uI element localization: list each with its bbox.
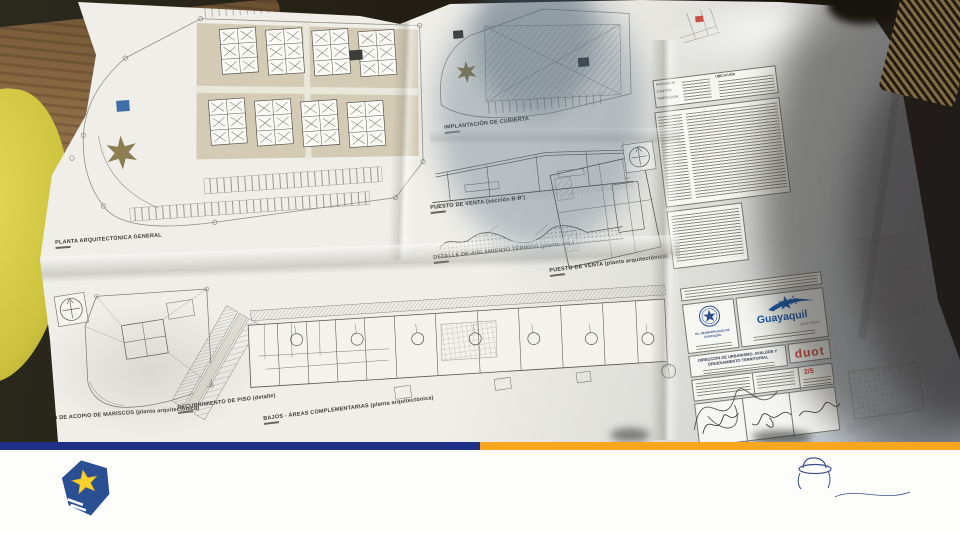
administration-caption: [753, 329, 815, 342]
hat-figure-icon: [795, 455, 835, 493]
municipality-emblem-box: M.I. MUNICIPALIDAD DE GUAYAQUIL: [682, 298, 740, 354]
notes-text: [671, 208, 744, 264]
page-fragment-tiles: [837, 351, 946, 439]
title-block-specs: [654, 97, 791, 208]
posorja-shield-logo: [58, 458, 116, 520]
checkered-sleeve: [878, 0, 960, 108]
site-plan-drawing: [50, 0, 437, 254]
title-block: PROVINCIA CANTÓN PARROQUIA UBICACIÓN: [649, 54, 846, 450]
location-values: [682, 78, 712, 101]
page-fragment-lines: [856, 231, 927, 324]
footer-bar-blue: [0, 442, 480, 450]
guayaquil-logo-box: Guayaquil JAIME NEBOT: [735, 287, 828, 347]
municipality-name: M.I. MUNICIPALIDAD DE GUAYAQUIL: [688, 327, 737, 341]
photo-of-blueprint: PROVINCIA CANTÓN PARROQUIA UBICACIÓN: [0, 0, 960, 442]
key-map-sketch: [674, 6, 725, 45]
footer-bar-yellow: [480, 442, 960, 450]
footer: GAD PARROQUIAL RURAL POSORJA Manuel Rome…: [0, 450, 960, 533]
mayor-name: JAIME NEBOT: [800, 320, 820, 326]
emblem-caption: [696, 342, 732, 350]
canton-label: CANTÓN: [657, 88, 672, 95]
large-signature-overlay: [682, 353, 841, 451]
blueprint-paper: PROVINCIA CANTÓN PARROQUIA UBICACIÓN: [0, 0, 960, 442]
parish-label: PARROQUIA: [657, 94, 678, 102]
province-label: PROVINCIA: [656, 81, 676, 89]
spec-text: [686, 102, 788, 199]
roof-plan-drawing: [423, 0, 645, 133]
municipality-emblem-icon: [697, 304, 722, 329]
screenshot-stage: PROVINCIA CANTÓN PARROQUIA UBICACIÓN: [0, 0, 960, 533]
title-block-notes: [666, 202, 749, 269]
signature-flourish: [835, 490, 913, 500]
footer-accent-bar: [0, 442, 960, 450]
